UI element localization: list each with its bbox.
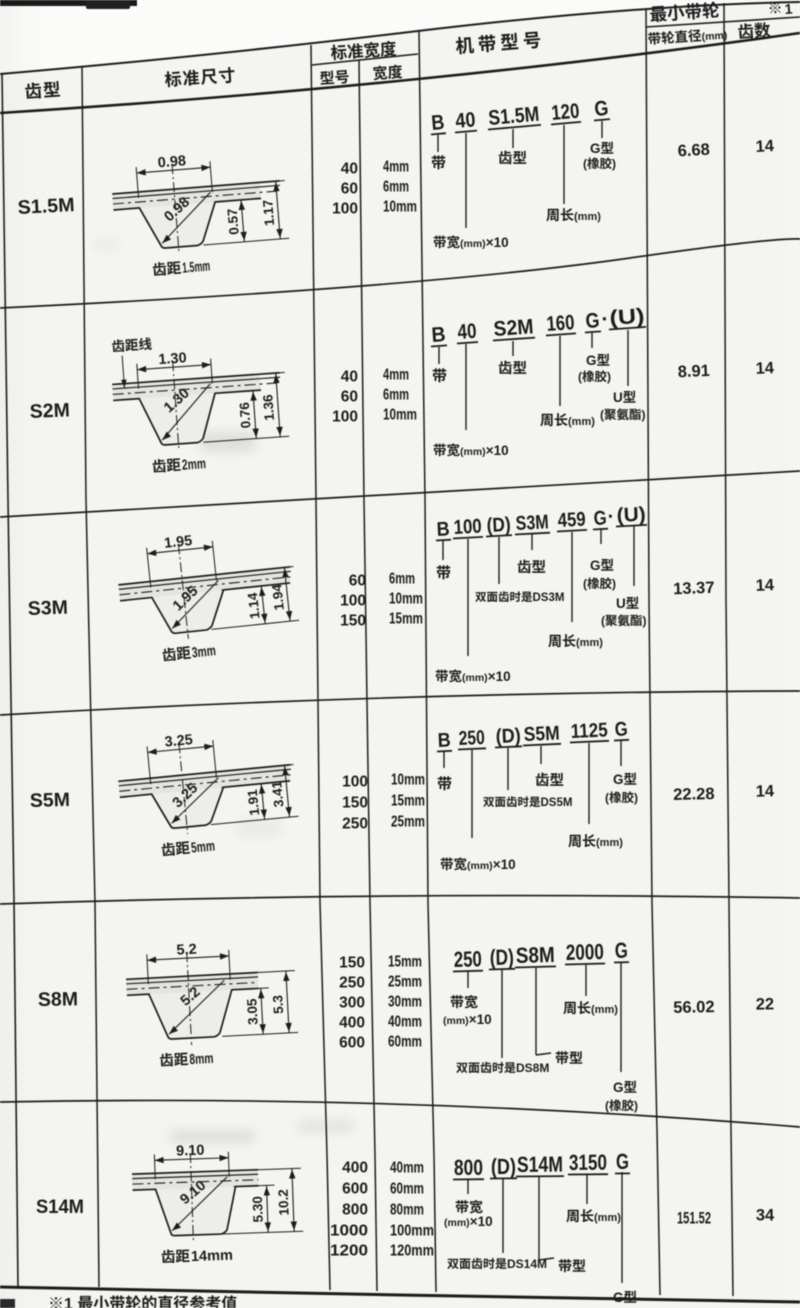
svg-text:1125: 1125 bbox=[570, 719, 608, 743]
svg-text:×10: ×10 bbox=[493, 857, 516, 872]
svg-text:400: 400 bbox=[339, 1015, 365, 1032]
svg-text:10mm: 10mm bbox=[389, 591, 423, 608]
svg-text:G: G bbox=[586, 353, 597, 368]
svg-text:0.57: 0.57 bbox=[225, 208, 242, 235]
svg-text:1.14: 1.14 bbox=[245, 592, 263, 620]
svg-text:600: 600 bbox=[339, 1035, 365, 1052]
svg-text:1200: 1200 bbox=[330, 1243, 368, 1260]
svg-text:1.30: 1.30 bbox=[158, 350, 187, 368]
svg-text:6.68: 6.68 bbox=[677, 141, 710, 161]
svg-text:60mm: 60mm bbox=[388, 1034, 422, 1051]
svg-text:150: 150 bbox=[340, 613, 366, 630]
svg-text:40: 40 bbox=[341, 369, 358, 386]
svg-text:120mm: 120mm bbox=[390, 1243, 434, 1260]
svg-text:3.41: 3.41 bbox=[269, 780, 286, 808]
svg-text:40: 40 bbox=[457, 320, 478, 344]
svg-text:(: ( bbox=[601, 614, 605, 628]
svg-text:60mm: 60mm bbox=[390, 1181, 424, 1198]
svg-text:(D): (D) bbox=[489, 944, 514, 970]
svg-text:8mm: 8mm bbox=[189, 1051, 214, 1068]
svg-text:(mm): (mm) bbox=[467, 860, 493, 872]
svg-text:S5M: S5M bbox=[30, 789, 71, 812]
svg-text:×10: ×10 bbox=[470, 1214, 493, 1229]
svg-text:22.28: 22.28 bbox=[673, 785, 715, 804]
svg-text:(mm): (mm) bbox=[701, 29, 727, 43]
svg-text:14: 14 bbox=[755, 576, 775, 595]
svg-text:60: 60 bbox=[341, 181, 358, 198]
svg-text:1.94: 1.94 bbox=[269, 583, 287, 611]
svg-text:5mm: 5mm bbox=[190, 838, 215, 856]
svg-text:100: 100 bbox=[453, 516, 482, 539]
svg-text:(mm): (mm) bbox=[576, 637, 603, 649]
svg-text:(mm): (mm) bbox=[444, 1217, 470, 1229]
svg-text:G: G bbox=[613, 772, 624, 787]
svg-text:13.37: 13.37 bbox=[673, 579, 715, 598]
svg-text:): ) bbox=[642, 408, 646, 422]
svg-text:10mm: 10mm bbox=[383, 407, 417, 424]
svg-text:1000: 1000 bbox=[330, 1223, 368, 1240]
svg-text:250: 250 bbox=[342, 816, 368, 833]
svg-text:300: 300 bbox=[339, 995, 365, 1012]
svg-text:×10: ×10 bbox=[486, 443, 509, 458]
svg-text:B: B bbox=[430, 111, 445, 135]
svg-text:S14M: S14M bbox=[517, 1152, 563, 1177]
svg-text:): ) bbox=[612, 157, 616, 171]
svg-text:10mm: 10mm bbox=[391, 772, 425, 789]
svg-text:0.76: 0.76 bbox=[237, 401, 254, 429]
svg-text:800: 800 bbox=[454, 1155, 483, 1180]
svg-text:1.91: 1.91 bbox=[245, 788, 262, 816]
svg-text:250: 250 bbox=[458, 727, 485, 750]
svg-text:DS5M: DS5M bbox=[541, 797, 573, 809]
svg-text:S3M: S3M bbox=[515, 511, 549, 535]
svg-text:100: 100 bbox=[340, 593, 366, 610]
svg-text:G: G bbox=[614, 938, 628, 963]
svg-text:G: G bbox=[616, 1149, 629, 1174]
svg-text:G: G bbox=[590, 558, 601, 573]
svg-text:(mm): (mm) bbox=[594, 1212, 621, 1224]
svg-text:): ) bbox=[612, 577, 616, 591]
svg-text:8.91: 8.91 bbox=[677, 362, 710, 381]
svg-text:5.2: 5.2 bbox=[176, 942, 197, 959]
svg-text:800: 800 bbox=[342, 1202, 368, 1219]
svg-text:B: B bbox=[437, 729, 451, 752]
svg-text:100mm: 100mm bbox=[390, 1223, 434, 1240]
svg-text:40: 40 bbox=[341, 161, 358, 178]
svg-text:3150: 3150 bbox=[569, 1150, 607, 1175]
svg-text:14: 14 bbox=[755, 782, 775, 800]
svg-text:6mm: 6mm bbox=[389, 571, 415, 588]
svg-text:6mm: 6mm bbox=[383, 179, 409, 196]
svg-text:1: 1 bbox=[784, 0, 793, 17]
svg-text:1.17: 1.17 bbox=[260, 199, 277, 226]
svg-text:DS3M: DS3M bbox=[533, 592, 565, 604]
svg-text:2mm: 2mm bbox=[181, 456, 206, 474]
svg-text:(: ( bbox=[605, 1099, 609, 1113]
svg-text:(mm): (mm) bbox=[460, 446, 486, 458]
svg-text:4mm: 4mm bbox=[383, 159, 409, 176]
svg-text:6mm: 6mm bbox=[383, 387, 409, 404]
svg-text:100: 100 bbox=[342, 774, 368, 791]
svg-text:(: ( bbox=[578, 370, 582, 384]
svg-text:60: 60 bbox=[349, 573, 366, 590]
svg-text:151.52: 151.52 bbox=[677, 1210, 711, 1228]
svg-text:120: 120 bbox=[550, 100, 580, 125]
svg-text:9.10: 9.10 bbox=[176, 1143, 205, 1160]
svg-text:B: B bbox=[431, 323, 447, 347]
svg-text:25mm: 25mm bbox=[391, 814, 425, 831]
svg-text:1: 1 bbox=[64, 1296, 73, 1308]
svg-text:U: U bbox=[616, 596, 626, 611]
svg-text:(U): (U) bbox=[609, 305, 646, 330]
svg-text:34: 34 bbox=[756, 1207, 775, 1225]
svg-text:56.02: 56.02 bbox=[673, 998, 715, 1017]
svg-text:(mm): (mm) bbox=[460, 238, 486, 250]
svg-text:22: 22 bbox=[756, 995, 775, 1013]
svg-text:(D): (D) bbox=[495, 725, 521, 748]
svg-text:15mm: 15mm bbox=[388, 954, 422, 971]
svg-text:400: 400 bbox=[342, 1160, 368, 1177]
svg-text:): ) bbox=[607, 370, 611, 384]
svg-text:3.05: 3.05 bbox=[244, 998, 260, 1026]
svg-text:G: G bbox=[593, 97, 609, 121]
svg-text:10mm: 10mm bbox=[383, 199, 417, 216]
svg-text:(mm): (mm) bbox=[443, 1015, 469, 1027]
svg-text:·: · bbox=[607, 506, 615, 528]
svg-text:(D): (D) bbox=[491, 1154, 516, 1179]
svg-text:150: 150 bbox=[339, 955, 365, 972]
svg-text:14: 14 bbox=[755, 359, 775, 378]
svg-text:): ) bbox=[634, 1099, 638, 1113]
svg-text:10.2: 10.2 bbox=[276, 1189, 292, 1216]
svg-text:S8M: S8M bbox=[38, 988, 78, 1011]
svg-text:150: 150 bbox=[342, 795, 368, 812]
svg-text:14mm: 14mm bbox=[191, 1248, 233, 1265]
svg-text:40mm: 40mm bbox=[390, 1160, 424, 1177]
svg-text:1.5mm: 1.5mm bbox=[182, 259, 211, 277]
svg-text:250: 250 bbox=[339, 975, 365, 992]
svg-text:1.95: 1.95 bbox=[163, 533, 193, 552]
svg-text:(: ( bbox=[600, 408, 604, 422]
svg-text:15mm: 15mm bbox=[389, 611, 423, 628]
svg-text:15mm: 15mm bbox=[391, 793, 425, 810]
svg-text:(: ( bbox=[583, 577, 587, 591]
svg-text:40: 40 bbox=[454, 108, 476, 133]
svg-text:3.25: 3.25 bbox=[164, 732, 194, 751]
svg-text:×10: ×10 bbox=[486, 235, 509, 250]
svg-text:459: 459 bbox=[557, 509, 586, 532]
svg-text:G: G bbox=[590, 141, 601, 156]
svg-text:(mm): (mm) bbox=[462, 672, 488, 684]
svg-text:S8M: S8M bbox=[515, 942, 555, 968]
svg-text:×10: ×10 bbox=[488, 669, 511, 684]
svg-text:G: G bbox=[585, 309, 601, 333]
svg-text:G: G bbox=[613, 1080, 624, 1095]
svg-text:100: 100 bbox=[332, 201, 358, 218]
svg-text:14: 14 bbox=[755, 137, 775, 156]
svg-text:U: U bbox=[613, 390, 623, 405]
svg-text:DS8M: DS8M bbox=[516, 1061, 549, 1075]
svg-text:100: 100 bbox=[332, 409, 358, 426]
svg-text:1.36: 1.36 bbox=[260, 393, 277, 421]
svg-text:S3M: S3M bbox=[27, 597, 68, 620]
svg-text:(U): (U) bbox=[616, 504, 646, 527]
svg-text:5.3: 5.3 bbox=[270, 994, 286, 1014]
svg-text:600: 600 bbox=[342, 1181, 368, 1198]
svg-text:S1.5M: S1.5M bbox=[17, 194, 75, 219]
svg-text:G: G bbox=[614, 718, 628, 741]
svg-text:(: ( bbox=[605, 791, 609, 805]
svg-text:30mm: 30mm bbox=[388, 994, 422, 1011]
svg-text:): ) bbox=[634, 791, 638, 805]
svg-text:60: 60 bbox=[341, 389, 358, 406]
svg-text:25mm: 25mm bbox=[388, 974, 422, 991]
svg-text:S2M: S2M bbox=[29, 399, 70, 423]
svg-text:(mm): (mm) bbox=[568, 416, 595, 428]
svg-text:B: B bbox=[436, 518, 450, 541]
svg-text:(mm): (mm) bbox=[596, 837, 623, 849]
svg-text:5.30: 5.30 bbox=[250, 1196, 266, 1223]
svg-text:S2M: S2M bbox=[493, 315, 535, 341]
svg-text:250: 250 bbox=[453, 946, 482, 972]
svg-text:3mm: 3mm bbox=[191, 643, 217, 661]
svg-text:(mm): (mm) bbox=[591, 1004, 618, 1016]
svg-text:G: G bbox=[593, 507, 607, 530]
svg-text:G: G bbox=[613, 1290, 624, 1305]
svg-text:): ) bbox=[643, 614, 647, 628]
svg-text:4mm: 4mm bbox=[383, 367, 409, 384]
svg-text:0.98: 0.98 bbox=[157, 153, 186, 171]
svg-text:80mm: 80mm bbox=[390, 1202, 424, 1219]
svg-text:40mm: 40mm bbox=[388, 1014, 422, 1031]
svg-text:×10: ×10 bbox=[469, 1012, 492, 1027]
svg-text:(mm): (mm) bbox=[574, 211, 601, 223]
svg-text:160: 160 bbox=[546, 311, 576, 336]
svg-text:2000: 2000 bbox=[565, 939, 604, 965]
svg-text:(D): (D) bbox=[486, 514, 511, 537]
svg-text:(: ( bbox=[583, 157, 587, 171]
svg-text:S5M: S5M bbox=[523, 722, 560, 746]
svg-text:S14M: S14M bbox=[36, 1196, 84, 1218]
